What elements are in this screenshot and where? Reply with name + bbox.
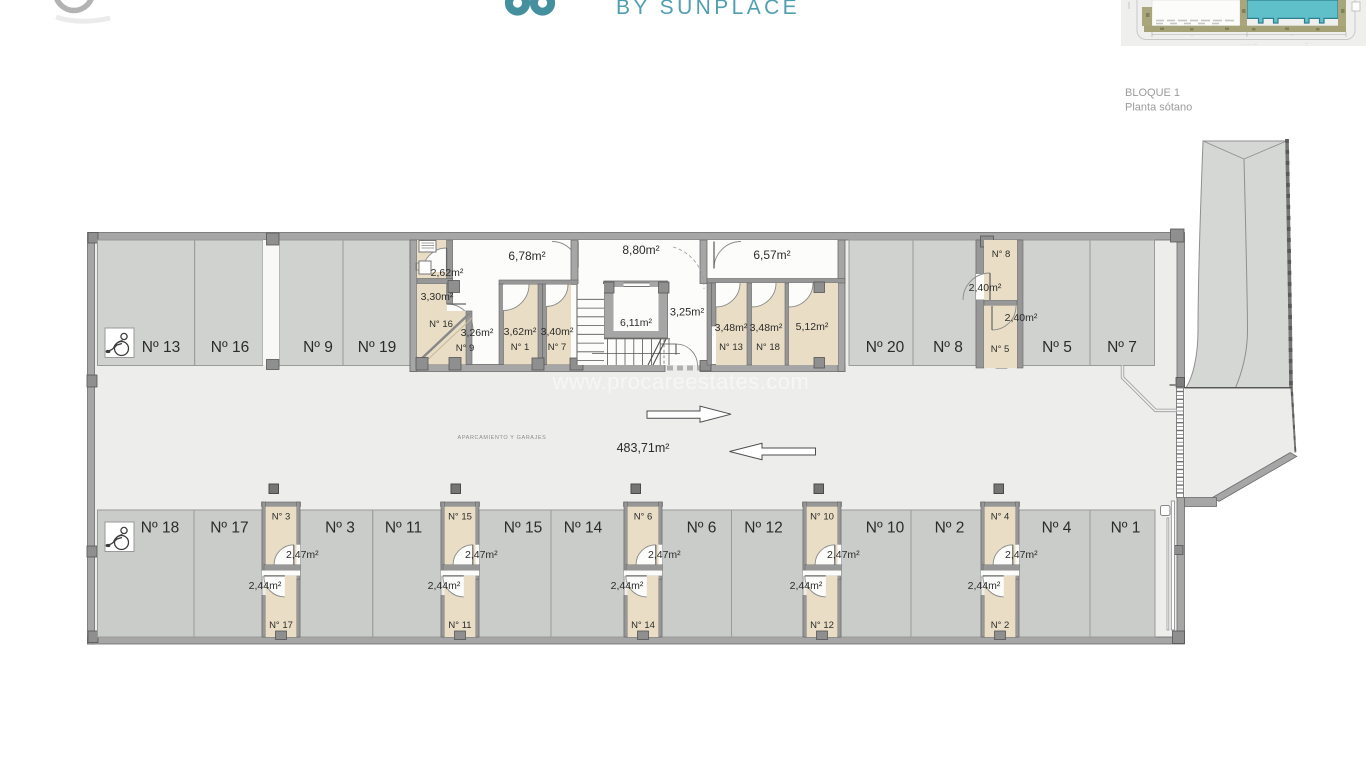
- svg-text:N° 10: N° 10: [810, 512, 834, 523]
- svg-text:6,11m²: 6,11m²: [620, 317, 652, 329]
- svg-text:N° 1: N° 1: [511, 342, 530, 353]
- svg-text:3,62m²: 3,62m²: [504, 326, 537, 338]
- svg-text:BLOQUE 1: BLOQUE 1: [1125, 87, 1180, 99]
- svg-text:Nº 15: Nº 15: [504, 520, 542, 537]
- svg-text:Nº 14: Nº 14: [564, 520, 603, 537]
- svg-text:BY SUNPLACE: BY SUNPLACE: [616, 0, 800, 19]
- svg-text:8,80m²: 8,80m²: [622, 243, 659, 257]
- svg-text:N° 17: N° 17: [269, 620, 293, 631]
- svg-text:Nº 5: Nº 5: [1042, 339, 1072, 356]
- svg-text:N° 16: N° 16: [429, 319, 453, 330]
- svg-text:3,40m²: 3,40m²: [541, 326, 574, 338]
- svg-text:2,44m²: 2,44m²: [249, 580, 282, 592]
- svg-text:N° 4: N° 4: [991, 512, 1010, 523]
- svg-text:Nº 20: Nº 20: [866, 339, 905, 356]
- svg-text:...: ...: [1305, 41, 1308, 45]
- svg-text:N° 2: N° 2: [991, 620, 1010, 631]
- svg-text:6,57m²: 6,57m²: [753, 248, 790, 262]
- svg-text:N° 14: N° 14: [631, 620, 655, 631]
- svg-text:Nº 13: Nº 13: [142, 339, 180, 356]
- svg-text:Nº 4: Nº 4: [1042, 520, 1072, 537]
- svg-text:N° 13: N° 13: [719, 342, 743, 353]
- svg-text:2,44m²: 2,44m²: [790, 580, 823, 592]
- svg-text:3,48m²: 3,48m²: [750, 322, 783, 334]
- svg-text:2,40m²: 2,40m²: [1005, 312, 1038, 324]
- svg-text:Nº 6: Nº 6: [687, 520, 717, 537]
- svg-text:N° 18: N° 18: [756, 342, 780, 353]
- svg-text:Nº 10: Nº 10: [866, 520, 905, 537]
- svg-text:Nº 3: Nº 3: [325, 520, 355, 537]
- svg-text:483,71m²: 483,71m²: [617, 441, 670, 455]
- svg-text:Nº 12: Nº 12: [744, 520, 782, 537]
- svg-text:2,44m²: 2,44m²: [611, 580, 644, 592]
- svg-text:3,48m²: 3,48m²: [715, 322, 748, 334]
- svg-text:3,25m²: 3,25m²: [670, 307, 705, 319]
- svg-text:3,26m²: 3,26m²: [461, 327, 494, 339]
- svg-text:2,47m²: 2,47m²: [827, 549, 860, 561]
- svg-text:Nº 19: Nº 19: [358, 339, 396, 356]
- svg-text:2,40m²: 2,40m²: [969, 282, 1002, 294]
- svg-text:N° 5: N° 5: [991, 344, 1010, 355]
- svg-text:Nº 11: Nº 11: [385, 520, 422, 537]
- svg-text:5,12m²: 5,12m²: [796, 321, 829, 333]
- svg-text:2,47m²: 2,47m²: [286, 549, 319, 561]
- svg-text:N° 8: N° 8: [992, 249, 1011, 260]
- svg-text:2,62m²: 2,62m²: [431, 267, 464, 279]
- svg-text:2,47m²: 2,47m²: [1005, 549, 1038, 561]
- svg-text:Nº 18: Nº 18: [141, 520, 179, 537]
- svg-text:Nº 1: Nº 1: [1111, 520, 1141, 537]
- svg-text:N° 3: N° 3: [272, 512, 291, 523]
- svg-text:2,44m²: 2,44m²: [968, 580, 1001, 592]
- svg-text:. . . . . . . ....: . . . . . . . ....: [1240, 42, 1258, 46]
- svg-text:Nº 17: Nº 17: [210, 520, 248, 537]
- svg-text:2,47m²: 2,47m²: [648, 549, 681, 561]
- svg-text:6,78m²: 6,78m²: [508, 249, 545, 263]
- svg-text:N° 9: N° 9: [456, 343, 475, 354]
- svg-text:2,44m²: 2,44m²: [428, 580, 461, 592]
- svg-text:N° 12: N° 12: [810, 620, 834, 631]
- svg-text:Planta sótano: Planta sótano: [1125, 102, 1192, 114]
- svg-text:N° 6: N° 6: [634, 512, 653, 523]
- svg-text:2,47m²: 2,47m²: [465, 549, 498, 561]
- svg-text:APARCAMIENTO Y GARAJES: APARCAMIENTO Y GARAJES: [458, 435, 547, 441]
- svg-text:Nº 8: Nº 8: [933, 339, 963, 356]
- svg-text:....: ....: [1190, 33, 1194, 37]
- svg-text:Nº 7: Nº 7: [1107, 339, 1137, 356]
- svg-text:N° 11: N° 11: [448, 620, 471, 631]
- svg-text:www.procareestates.com: www.procareestates.com: [552, 369, 810, 394]
- svg-text:N° 7: N° 7: [548, 342, 567, 353]
- svg-text:....: ....: [1290, 33, 1294, 37]
- svg-text:Nº 2: Nº 2: [935, 520, 965, 537]
- svg-text:N° 15: N° 15: [448, 512, 472, 523]
- svg-text:Nº 9: Nº 9: [303, 339, 333, 356]
- svg-text:Nº 16: Nº 16: [211, 339, 249, 356]
